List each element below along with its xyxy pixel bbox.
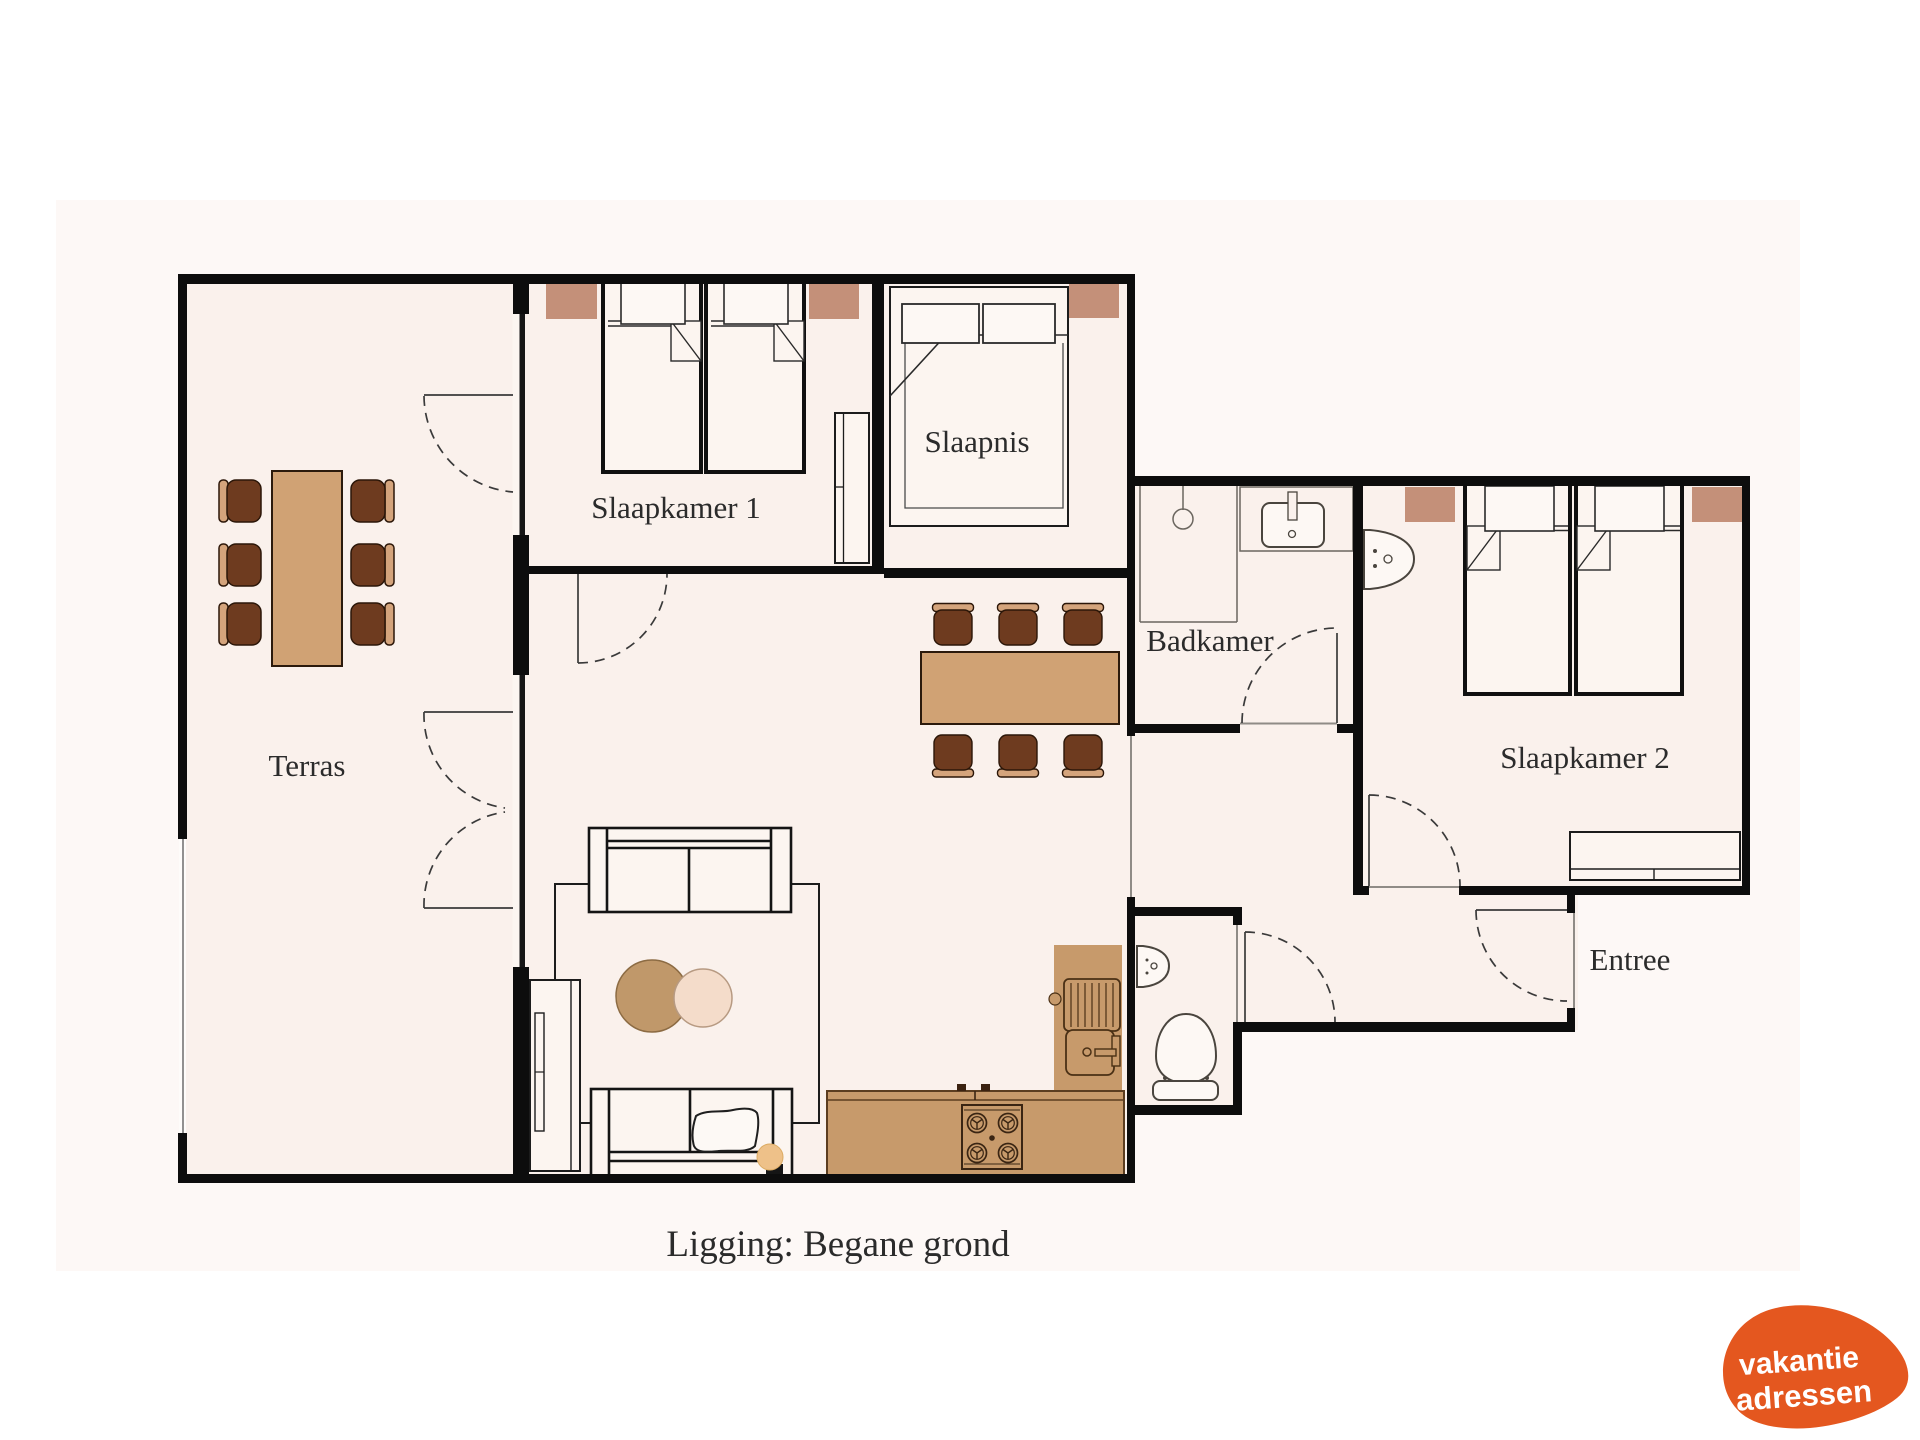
svg-text:Entree: Entree bbox=[1590, 942, 1671, 977]
svg-text:Terras: Terras bbox=[268, 748, 345, 783]
svg-text:Badkamer: Badkamer bbox=[1146, 623, 1274, 658]
svg-text:Ligging: Begane grond: Ligging: Begane grond bbox=[666, 1224, 1010, 1265]
svg-text:Slaapkamer 2: Slaapkamer 2 bbox=[1500, 740, 1670, 775]
svg-text:Slaapkamer 1: Slaapkamer 1 bbox=[591, 490, 761, 525]
svg-text:Slaapnis: Slaapnis bbox=[924, 424, 1029, 459]
